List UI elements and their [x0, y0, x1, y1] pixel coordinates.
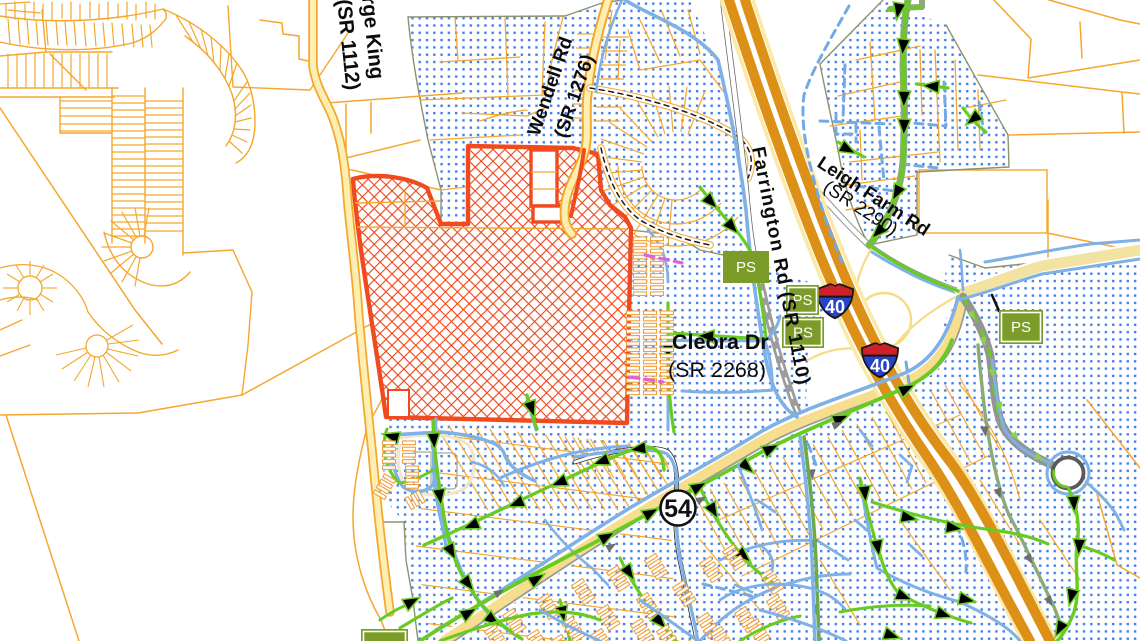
svg-text:(SR 2268): (SR 2268): [668, 358, 766, 382]
svg-text:40: 40: [825, 297, 845, 317]
svg-text:Cleora Dr: Cleora Dr: [672, 330, 769, 354]
svg-text:PS: PS: [1011, 319, 1031, 336]
svg-text:54: 54: [664, 495, 692, 523]
svg-text:PS: PS: [736, 259, 756, 276]
svg-text:40: 40: [870, 356, 890, 376]
